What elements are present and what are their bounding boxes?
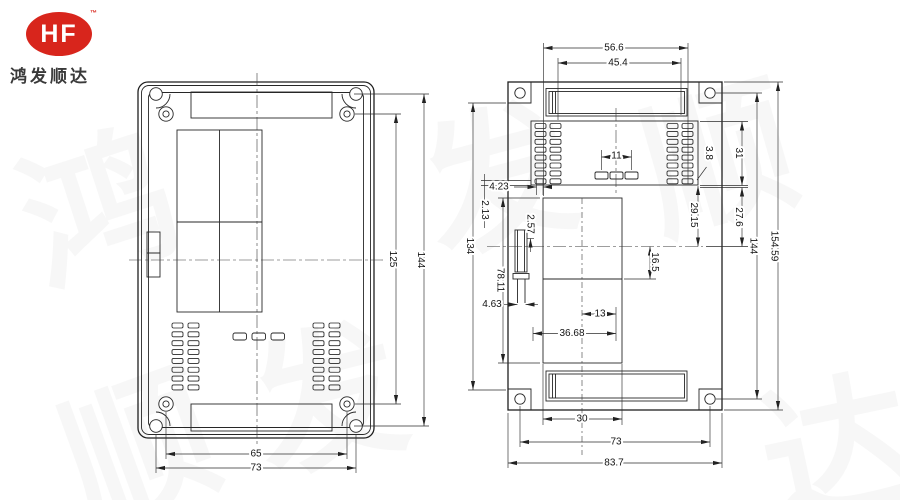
vent-slot [682,171,693,176]
side-connector [513,230,529,303]
vent-slot [682,155,693,160]
vent-slot [329,376,340,381]
vent-slot [667,147,678,152]
dim-mid-span: 36.68 [533,327,616,341]
corner-hole [150,420,163,433]
vent-slot [550,155,561,160]
dim-label: 83.7 [604,458,624,469]
top-display-slot [191,92,332,118]
vent-grid-left [535,124,561,184]
vent-slot [550,171,561,176]
vent-slot [682,179,693,184]
vent-slot [172,358,183,363]
vent-slot [313,367,324,372]
vent-slot [188,323,199,328]
vent-slot [550,147,561,152]
dim-hole-span-height: 144 [716,93,762,399]
dim-label: 144 [747,238,758,255]
mount-hole [705,394,715,404]
vent-slot [172,323,183,328]
dim-label: 45.4 [608,58,628,69]
dim-label: 56.6 [604,43,624,54]
vent-slot [682,147,693,152]
central-window [177,130,262,312]
dim-label: 125 [387,251,398,268]
right-view-back: 56.6 45.4 11 3.8 31 [464,43,783,469]
vent-slot [682,163,693,168]
vent-slot [667,171,678,176]
vent-slot [329,341,340,346]
vent-slot [667,155,678,160]
vent-slot [667,139,678,144]
vent-slot [329,350,340,355]
mount-hole [705,88,715,98]
dim-label: 78.11 [494,268,505,293]
vent-slot [682,131,693,136]
dim-label: 65 [250,449,262,460]
dim-label: 134 [464,238,475,255]
vent-slot [172,385,183,390]
corner-hole [150,88,163,101]
bottom-window-slot [546,371,687,401]
drawing-svg: 65 73 125 144 [0,0,900,500]
dim-window-width: 30 [543,364,622,425]
vent-slot [172,367,183,372]
dim-label: 4.23 [489,182,509,193]
vent-slot [535,147,546,152]
vent-slot [329,367,340,372]
dim-label: 27.6 [733,207,744,227]
vent-slot [188,385,199,390]
top-window-slot [546,89,687,117]
vent-slot [535,139,546,144]
vent-slot [667,131,678,136]
vent-slot [682,139,693,144]
bottom-display-slot [191,404,332,431]
vent-grid-right [313,323,340,390]
dim-label: 73 [610,437,622,448]
key-slots [595,172,638,179]
dim-label: 11 [611,151,622,162]
mount-hole [515,88,525,98]
vent-slot [535,171,546,176]
vent-slot [535,131,546,136]
dim-center-offset: 16.5 [624,247,660,280]
dim-side-upper: 27.6 [700,188,748,247]
vent-slot [550,124,561,129]
dim-label: 36.68 [559,328,584,339]
vent-slot [313,332,324,337]
screw-bosses [159,107,354,411]
vent-slot [188,341,199,346]
dim-vent-slot-offset: 3.8 [697,146,714,180]
dim-label: 29.15 [688,202,699,227]
dim-label: 2.57 [524,214,535,234]
vent-slot [188,367,199,372]
dim-label: 16.5 [649,252,660,272]
dim-label: 31 [733,147,744,159]
dim-label: 13 [594,309,606,320]
left-view-front: 65 73 125 144 [129,73,429,474]
vent-slot [329,323,340,328]
vent-slot [313,341,324,346]
vent-slot [667,179,678,184]
vent-slot [550,163,561,168]
vent-slot [682,124,693,129]
dim-hole-span-width: 73 [520,406,710,448]
dim-label: 30 [576,414,588,425]
dim-inner-height: 125 [355,114,401,404]
vent-slot [329,385,340,390]
dim-label: 2.13 [479,200,490,220]
vent-slot [550,131,561,136]
vent-grid-right [667,124,693,184]
vent-slot [188,332,199,337]
dim-label: 4.63 [482,299,502,310]
vent-slot [172,350,183,355]
vent-slot [313,385,324,390]
dim-label: 73 [250,463,262,474]
vent-slot [550,139,561,144]
key-slots [233,333,285,340]
dim-pin-gap: 4.63 [482,299,538,310]
dim-label: 144 [415,252,426,269]
vent-grid-left [172,323,199,390]
vent-slot [535,124,546,129]
vent-slot [535,163,546,168]
vent-slot [313,358,324,363]
vent-slot [535,155,546,160]
dim-side-inner: 29.15 [688,186,699,247]
vent-slot [667,124,678,129]
vent-slot [172,376,183,381]
vent-slot [172,341,183,346]
vent-slot [188,358,199,363]
vent-slot [329,332,340,337]
mount-hole [515,394,525,404]
dim-vent-gap: 4.23 [489,179,550,195]
vent-slot [313,323,324,328]
dim-inner-width: 65 [166,412,347,460]
vent-slot [172,332,183,337]
dim-key-slot-pitch: 11 [602,150,632,170]
vent-slot [329,358,340,363]
technical-drawing-page: 鸿 发 顺 达 顺 发 HF ™ 鸿发顺达 [0,0,900,500]
dim-label: 154.59 [768,231,779,262]
dim-half-width: 13 [582,307,616,341]
vent-slot [667,163,678,168]
vent-slot [550,179,561,184]
vent-slot [188,350,199,355]
vent-slot [188,376,199,381]
dim-label: 3.8 [703,146,714,160]
vent-slot [313,376,324,381]
vent-slot [313,350,324,355]
